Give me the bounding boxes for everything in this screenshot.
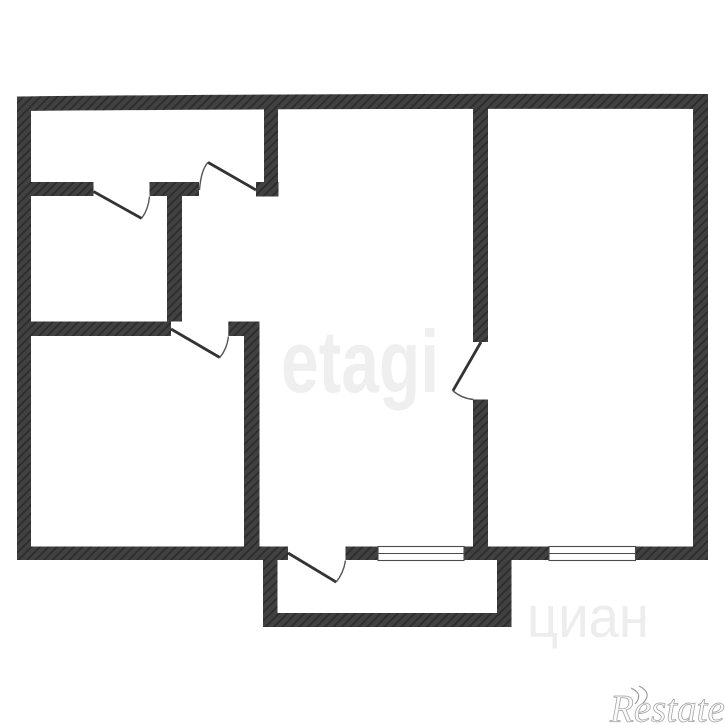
svg-text:циан: циан: [527, 585, 649, 650]
svg-text:Restate: Restate: [609, 688, 725, 725]
svg-text:etagi: etagi: [281, 312, 439, 411]
